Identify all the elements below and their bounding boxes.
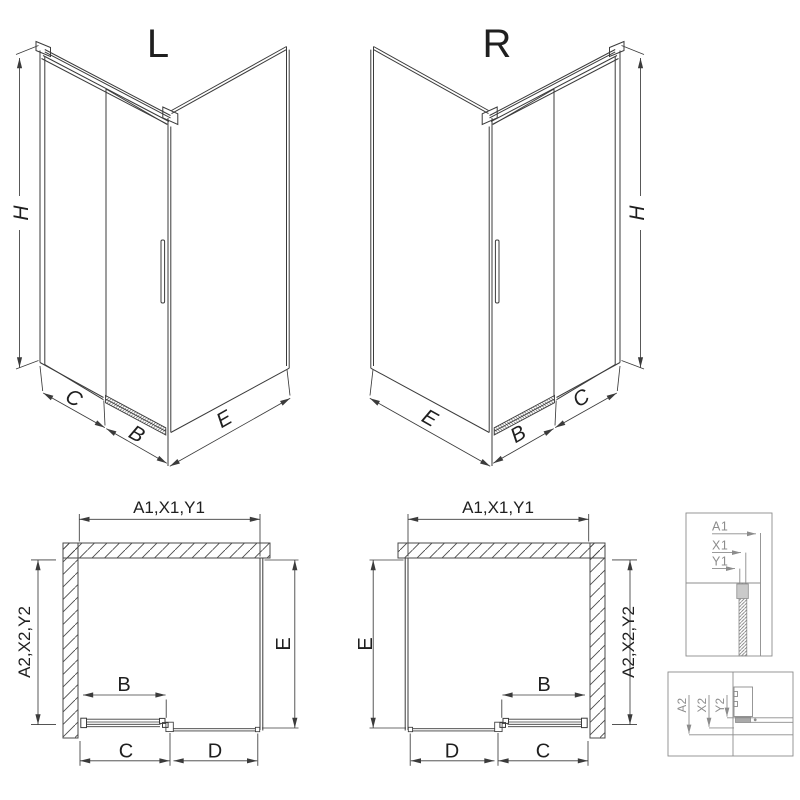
plan-r-wall-top <box>398 543 605 558</box>
plan-l-depth-label: A2,X2,Y2 <box>15 606 34 678</box>
view-title-r: R <box>483 22 512 66</box>
plan-l-e-label: E <box>273 637 295 650</box>
drawing-canvas: L H C B E R H E B C A1,X1,Y1 A2,X2,Y2 E … <box>0 0 800 800</box>
view-title-l: L <box>147 22 169 66</box>
detail-a1-label: A1 <box>712 520 728 534</box>
detail-profile <box>737 584 749 599</box>
dim-label-h-l: H <box>10 205 33 221</box>
plan-r-depth-label: A2,X2,Y2 <box>619 606 638 678</box>
plan-r-wall-right <box>590 543 605 738</box>
plan-l-width-label: A1,X1,Y1 <box>133 498 205 517</box>
technical-drawing: L H C B E R H E B C A1,X1,Y1 A2,X2,Y2 E … <box>0 0 800 800</box>
plan-l-b-label: B <box>117 674 130 696</box>
plan-r-e-label: E <box>355 637 377 650</box>
dim-label-h-r: H <box>626 205 649 221</box>
plan-r-width-label: A1,X1,Y1 <box>462 498 534 517</box>
plan-l-wall-left <box>63 543 78 738</box>
detail-roller-dot <box>754 718 757 721</box>
detail-x2-label: X2 <box>697 697 709 712</box>
detail-y2-label: Y2 <box>715 697 727 712</box>
detail-a2-label: A2 <box>677 697 689 712</box>
detail-x1-label: X1 <box>712 539 728 553</box>
plan-r-d-label: D <box>445 741 459 763</box>
plan-l-wall-top <box>63 543 270 558</box>
plan-r-b-label: B <box>537 674 550 696</box>
plan-l-c-label: C <box>119 741 133 763</box>
plan-l-d-label: D <box>208 741 222 763</box>
detail-y1-label: Y1 <box>712 555 728 569</box>
plan-r-c-label: C <box>536 741 550 763</box>
